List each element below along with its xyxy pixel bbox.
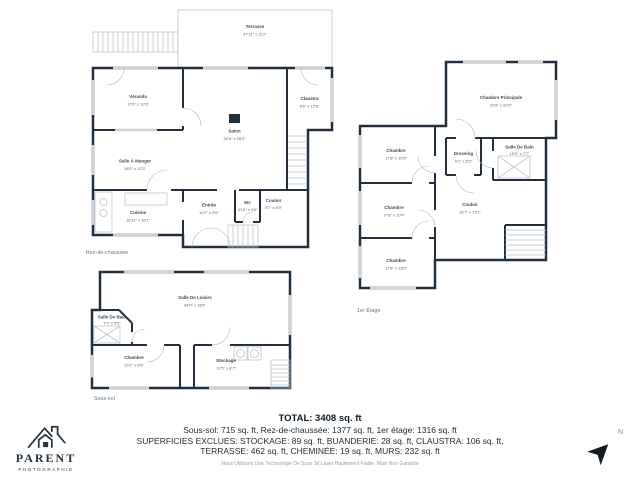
room-dims: 4'7" x 6'0" xyxy=(265,205,283,210)
room-label: Cuisine xyxy=(130,210,147,215)
house-logo-icon xyxy=(24,421,68,450)
floor-label-premier-etage: 1er Étage xyxy=(357,308,380,314)
room-dims: 4'10" x 4'6" xyxy=(238,207,258,212)
room-label: Wc xyxy=(244,200,251,205)
room-label: Chambre Principale xyxy=(480,95,523,100)
summary-excluded-areas-1: SUPERFICIES EXCLUES: STOCKAGE: 89 sq. ft… xyxy=(0,436,640,447)
terrace-outline xyxy=(178,10,332,68)
room-dims: 6'1" x 5'2" xyxy=(455,159,473,164)
room-label: Terrasse xyxy=(246,24,265,29)
floorplan-sheet: Terrasse 47'11" x 11'2" Véranda 17'6" x … xyxy=(0,0,640,480)
summary-excluded-areas-2: TERRASSE: 462 sq. ft, CHEMINÉE: 19 sq. f… xyxy=(0,446,640,457)
room-label: Salle De Loisirs xyxy=(178,295,212,300)
room-label: Chambre xyxy=(124,355,144,360)
logo-subtitle: PHOTOGRAPHIE xyxy=(10,467,82,472)
room-label: Dressing xyxy=(454,151,474,156)
logo-name: PARENT xyxy=(10,451,82,466)
floor-label-sous-sol: Sous-sol xyxy=(94,396,115,402)
room-dims: 17'8" x 10'4" xyxy=(383,213,406,218)
scan-disclaimer: Nous Utilisons Une Technologie De Scan 3… xyxy=(0,461,640,467)
room-label: Salle De Bain xyxy=(505,145,534,150)
plan-sous-sol: Salle De Loisirs 34'0" x 18'5" Salle De … xyxy=(84,270,292,394)
room-dims: 7'7" x 5'5" xyxy=(103,321,121,326)
room-label: Chambre xyxy=(386,148,406,153)
room-label: Couloir xyxy=(462,202,478,207)
plan-premier-etage: Chambre Principale 20'8" x 20'2" Chambre… xyxy=(356,60,560,310)
room-label: Salon xyxy=(228,129,241,134)
room-dims: 34'0" x 18'5" xyxy=(184,303,207,308)
room-dims: 8'6" x 12'6" xyxy=(300,104,320,109)
room-dims: 17'8" x 10'9" xyxy=(385,156,408,161)
room-dims: 16'11" x 10'1" xyxy=(126,218,150,223)
compass: N ➤ xyxy=(586,430,626,474)
exterior-walls xyxy=(92,272,290,388)
balcony-railing xyxy=(93,32,178,52)
room-dims: 20'8" x 20'2" xyxy=(490,103,513,108)
summary-total: TOTAL: 3408 sq. ft xyxy=(0,413,640,425)
room-dims: 15'1" x 9'4" xyxy=(124,363,144,368)
room-label: Chambre xyxy=(384,205,404,210)
plan-rez-de-chaussee: Terrasse 47'11" x 11'2" Véranda 17'6" x … xyxy=(83,2,335,254)
room-label: Claustra xyxy=(300,96,319,101)
room-dims: 16'7" x 13'1" xyxy=(459,210,482,215)
room-dims: 47'11" x 11'2" xyxy=(243,32,267,37)
room-label: Stockage xyxy=(216,358,237,363)
area-summary: TOTAL: 3408 sq. ft Sous-sol: 715 sq. ft,… xyxy=(0,413,640,467)
photographer-logo: PARENT PHOTOGRAPHIE xyxy=(10,421,82,472)
room-dims: 17'8" x 13'5" xyxy=(385,266,408,271)
room-dims: 20'8" x 26'0" xyxy=(224,136,247,141)
room-label: Salle De Bain xyxy=(98,315,127,320)
summary-areas-by-floor: Sous-sol: 715 sq. ft, Rez-de-chaussée: 1… xyxy=(0,425,640,436)
exterior-walls xyxy=(360,62,556,288)
room-dims: 10'5" x 8'7" xyxy=(216,366,236,371)
room-label: Véranda xyxy=(129,94,147,99)
room-label: Salle À Manger xyxy=(119,158,152,164)
room-dims: 10'7" x 9'6" xyxy=(199,210,219,215)
room-dims: 18'0" x 12'3" xyxy=(124,166,147,171)
room-label: Entrée xyxy=(202,203,217,208)
room-dims: 17'6" x 12'6" xyxy=(127,102,150,107)
fireplace xyxy=(229,114,240,123)
room-label: Couloir xyxy=(266,198,282,203)
room-dims: 10'0" x 7'7" xyxy=(510,151,530,156)
floor-label-rez-de-chaussee: Rez-de-chaussée xyxy=(86,250,128,256)
room-label: Chambre xyxy=(386,258,406,263)
